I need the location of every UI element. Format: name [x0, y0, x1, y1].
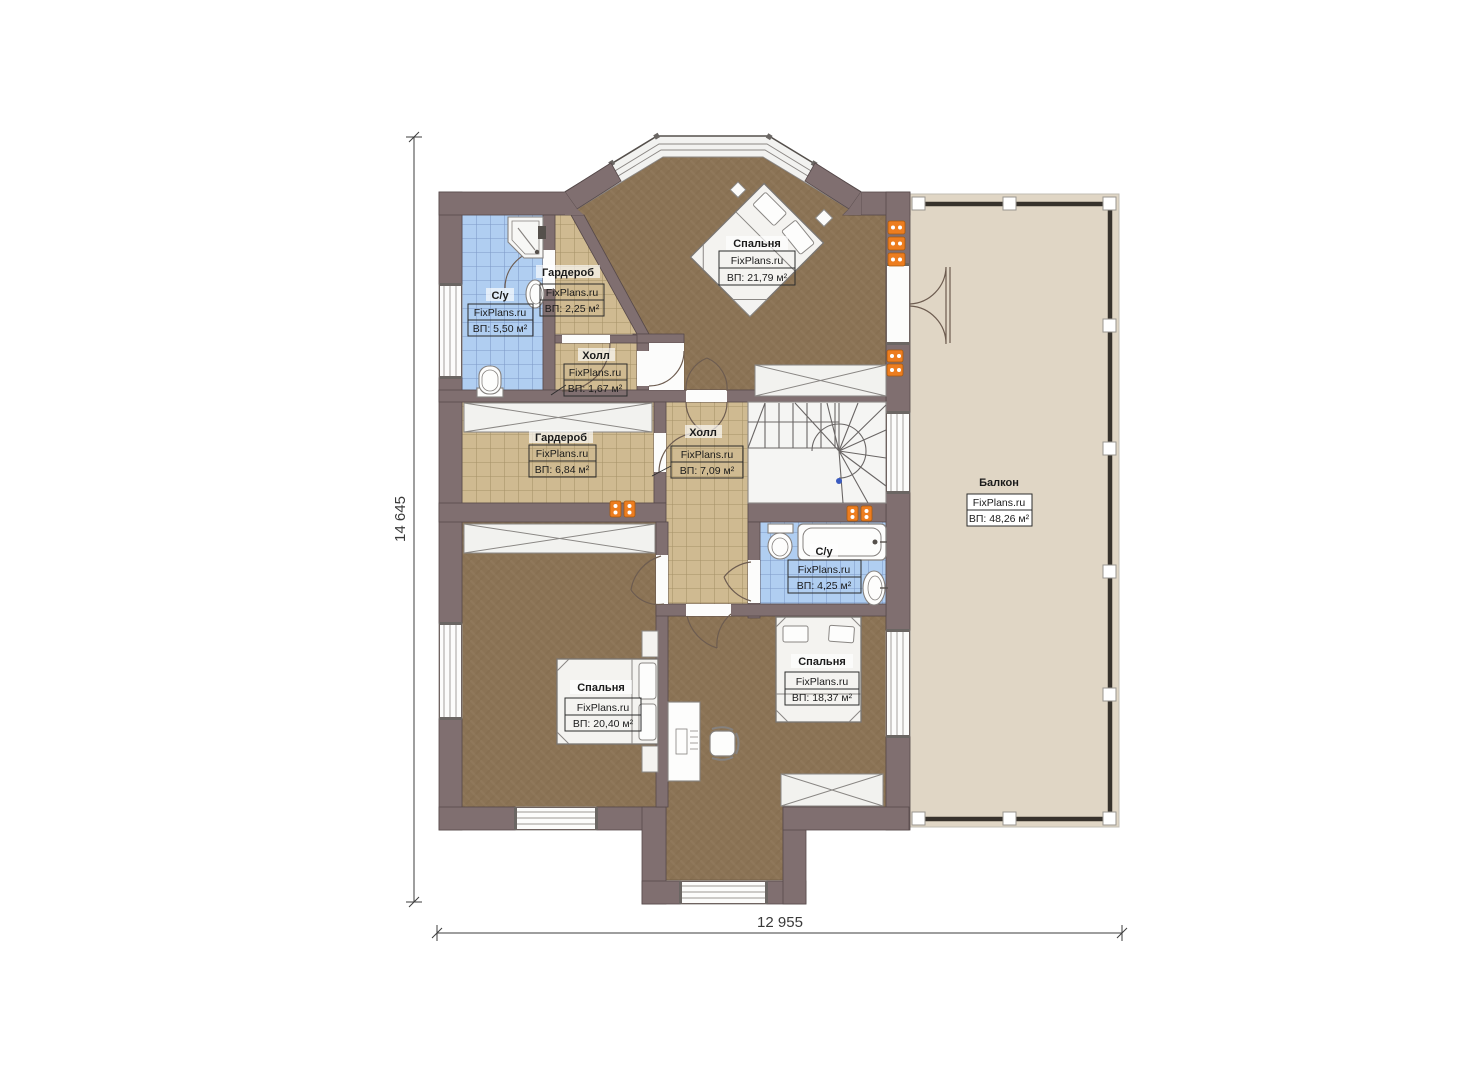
svg-text:ВП: 20,40 м²: ВП: 20,40 м² — [573, 718, 634, 730]
svg-text:ВП: 2,25 м²: ВП: 2,25 м² — [545, 303, 600, 315]
svg-text:FixPlans.ru: FixPlans.ru — [731, 255, 784, 267]
svg-text:FixPlans.ru: FixPlans.ru — [546, 287, 599, 299]
svg-text:Гардероб: Гардероб — [542, 267, 594, 279]
svg-text:ВП: 21,79 м²: ВП: 21,79 м² — [727, 272, 788, 284]
svg-text:FixPlans.ru: FixPlans.ru — [681, 449, 734, 461]
svg-text:Холл: Холл — [582, 350, 610, 362]
svg-text:FixPlans.ru: FixPlans.ru — [796, 676, 849, 688]
svg-text:FixPlans.ru: FixPlans.ru — [569, 367, 622, 379]
svg-text:ВП: 4,25 м²: ВП: 4,25 м² — [797, 580, 852, 592]
svg-text:ВП: 18,37 м²: ВП: 18,37 м² — [792, 692, 853, 704]
svg-text:Балкон: Балкон — [979, 477, 1019, 489]
svg-text:Спальня: Спальня — [733, 238, 781, 250]
svg-text:ВП: 5,50 м²: ВП: 5,50 м² — [473, 323, 528, 335]
svg-text:ВП: 7,09 м²: ВП: 7,09 м² — [680, 465, 735, 477]
svg-text:ВП: 6,84 м²: ВП: 6,84 м² — [535, 464, 590, 476]
svg-text:14 645: 14 645 — [392, 496, 409, 542]
svg-text:Гардероб: Гардероб — [535, 432, 587, 444]
svg-text:FixPlans.ru: FixPlans.ru — [798, 564, 851, 576]
svg-text:ВП: 1,67 м²: ВП: 1,67 м² — [568, 383, 623, 395]
svg-text:Спальня: Спальня — [798, 656, 846, 668]
svg-text:FixPlans.ru: FixPlans.ru — [536, 448, 589, 460]
svg-text:ВП: 48,26 м²: ВП: 48,26 м² — [969, 513, 1030, 525]
svg-text:12 955: 12 955 — [757, 914, 803, 931]
svg-text:Холл: Холл — [689, 427, 717, 439]
svg-text:Спальня: Спальня — [577, 682, 625, 694]
svg-text:FixPlans.ru: FixPlans.ru — [577, 702, 630, 714]
svg-text:С/у: С/у — [815, 546, 833, 558]
svg-text:FixPlans.ru: FixPlans.ru — [973, 497, 1026, 509]
svg-text:С/у: С/у — [491, 290, 509, 302]
svg-text:FixPlans.ru: FixPlans.ru — [474, 307, 527, 319]
